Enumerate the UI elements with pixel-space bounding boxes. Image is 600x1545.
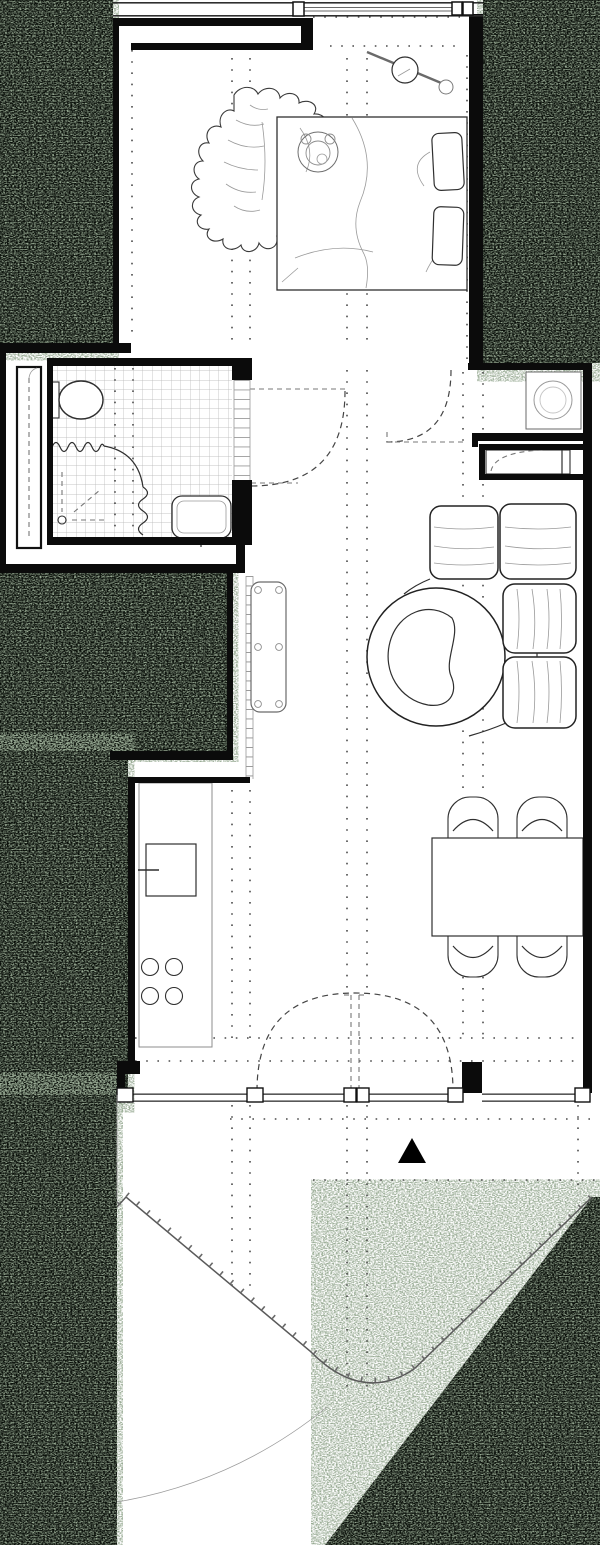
mullion [344, 1088, 356, 1102]
mullion [117, 1088, 133, 1102]
pocket-door-panel [234, 380, 250, 484]
outside-bottom-right-wedge [325, 1197, 600, 1545]
door-swings: bathroom pocket door entry door swing do… [250, 370, 465, 1091]
wall-segment [128, 777, 135, 1063]
kitchen-fittings: kitchen counter run kitchen sink with ta… [138, 783, 212, 1047]
wall-segment [0, 343, 6, 573]
wall-segment [131, 43, 313, 50]
washing-machine: washing machine in niche [526, 372, 581, 429]
bedroom-furniture: animal-hide rug double bed [192, 52, 468, 290]
wall-segment [479, 474, 583, 480]
balcony-floor-edge [117, 1407, 327, 1502]
north-marker-icon: solid triangle marker [398, 1138, 426, 1163]
wall-segment [0, 564, 245, 573]
wall-segment [232, 358, 252, 380]
wall-segment [472, 433, 478, 447]
kitchen-counter: kitchen counter run [139, 783, 212, 1047]
mullion [357, 1088, 369, 1102]
wall-segment [47, 358, 243, 366]
dining-set: four dining chairs rectangular dining ta… [432, 797, 583, 977]
wall-segment [472, 433, 583, 441]
glazing-mullions [117, 1088, 590, 1102]
entry-fittings: washing machine in niche built-in entry … [486, 372, 581, 474]
mullion [575, 1088, 590, 1102]
wall-segment [468, 363, 592, 370]
hallway-elements: wall-mounted desk with grommets [246, 576, 286, 779]
entry-closet: built-in entry closet [486, 450, 570, 474]
wall-desk: wall-mounted desk with grommets [251, 582, 286, 712]
entry-door-swing: entry door swing [386, 370, 465, 442]
balcony-door-swing: double balcony door swing [257, 993, 453, 1091]
top-window [113, 2, 483, 17]
wardrobe: tall wardrobe with sliding door [17, 367, 41, 548]
wall-segment [128, 777, 250, 783]
outside-balcony-left [0, 1095, 117, 1545]
wall-segment [0, 343, 131, 353]
window-frame-block [293, 2, 304, 16]
kitchen-sink: kitchen sink with tap [138, 844, 196, 896]
bed: double bed two pillows teddy bear on bed [277, 117, 467, 290]
outside-left-block [0, 573, 227, 753]
mullion [247, 1088, 263, 1102]
wall-segment [47, 537, 243, 545]
round-lounge-chair: round lounge chair with cut-out [367, 588, 505, 726]
dining-table: rectangular dining table [432, 838, 583, 936]
mullion [448, 1088, 463, 1102]
floor-plan-page: Studio apartment floor plan with curved … [0, 0, 600, 1545]
pendant-lamp: pendant lamp with rod [367, 52, 453, 94]
wall-segment [236, 537, 245, 573]
floor-plan-canvas: Studio apartment floor plan with curved … [0, 0, 600, 1545]
toilet: toilet with cistern [50, 381, 103, 419]
outside-top-right [483, 0, 600, 363]
window-frame-block [463, 2, 473, 15]
wall-segment [479, 444, 583, 450]
outside-left-strip [0, 751, 128, 1095]
living-room-furniture: round lounge chair with cut-out modular … [367, 504, 583, 977]
wall-segment [469, 14, 483, 365]
wall-segment [113, 18, 313, 26]
wall-segment [47, 358, 53, 545]
wall-segment [113, 18, 119, 343]
outside-top-left [0, 0, 113, 343]
wall-segment [479, 444, 485, 480]
wall-segment [232, 480, 252, 545]
wall-segment [110, 751, 233, 760]
wall-segment [227, 573, 233, 756]
bathroom-door-swing: bathroom pocket door [250, 389, 345, 486]
wall-pier [462, 1062, 482, 1093]
window-frame-block [452, 2, 462, 15]
wall-segment [583, 363, 592, 1093]
balcony-glazing [117, 1088, 590, 1102]
